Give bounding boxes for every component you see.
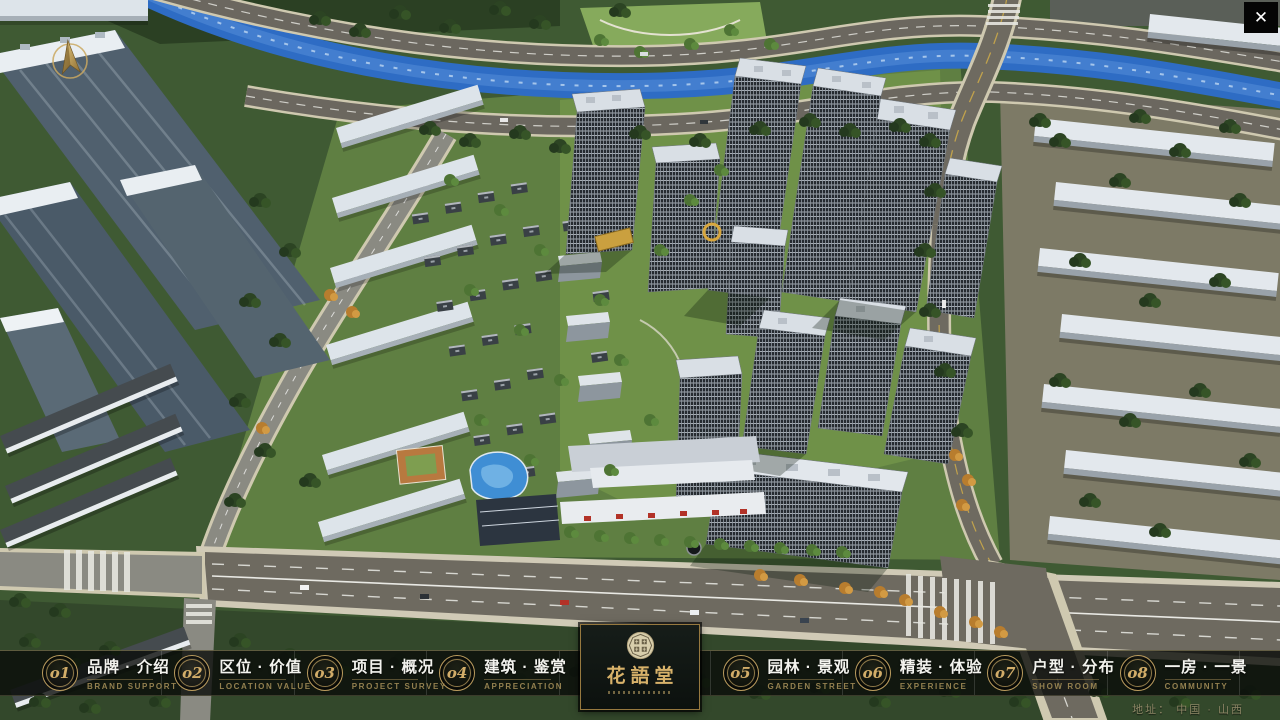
nav-item-location[interactable]: o2 区位 · 价值 LOCATION VALUE xyxy=(162,651,294,695)
close-icon: ✕ xyxy=(1254,8,1268,28)
nav-label-en: APPRECIATION xyxy=(484,679,550,691)
nav-label-cn: 精装 · 体验 xyxy=(900,655,966,677)
nav-label-cn: 项目 · 概况 xyxy=(352,655,418,677)
masterplan-viewer: ✕ o1 品牌 · 介绍 BRAND SUPPORT o2 区位 · 价值 LO… xyxy=(0,0,1280,720)
nav-label-en: BRAND SUPPORT xyxy=(87,679,153,691)
seal-icon xyxy=(626,631,655,660)
nav-item-brand[interactable]: o1 品牌 · 介绍 BRAND SUPPORT xyxy=(30,651,162,695)
nav-item-interior[interactable]: o6 精装 · 体验 EXPERIENCE xyxy=(843,651,975,695)
nav-item-views[interactable]: o8 一房 · 一景 COMMUNITY xyxy=(1108,651,1240,695)
nav-label-en: LOCATION VALUE xyxy=(219,679,285,691)
nav-number-badge: o3 xyxy=(307,655,343,691)
nav-item-architecture[interactable]: o4 建筑 · 鉴赏 APPRECIATION xyxy=(427,651,559,695)
nav-label-cn: 建筑 · 鉴赏 xyxy=(484,655,550,677)
nav-label-cn: 园林 · 景观 xyxy=(768,655,834,677)
nav-item-garden[interactable]: o5 园林 · 景观 GARDEN STREET xyxy=(711,651,843,695)
logo-title: 花語堂 xyxy=(601,661,678,688)
nav-label-en: GARDEN STREET xyxy=(768,679,834,691)
nav-number-badge: o8 xyxy=(1120,655,1156,691)
nav-label-cn: 户型 · 分布 xyxy=(1032,655,1098,677)
nav-number-badge: o4 xyxy=(439,655,475,691)
nav-number-badge: o5 xyxy=(723,655,759,691)
nav-number-badge: o1 xyxy=(42,655,78,691)
logo-subtitle xyxy=(608,691,672,694)
nav-item-project[interactable]: o3 项目 · 概况 PROJECT SURVEY xyxy=(295,651,427,695)
nav-number-badge: o7 xyxy=(987,655,1023,691)
nav-number-badge: o2 xyxy=(174,655,210,691)
nav-label-en: PROJECT SURVEY xyxy=(352,679,418,691)
nav-label-en: SHOW ROOM xyxy=(1032,679,1098,691)
logo-panel[interactable]: 花語堂 xyxy=(580,624,700,710)
close-button[interactable]: ✕ xyxy=(1244,2,1278,33)
nav-label-en: EXPERIENCE xyxy=(900,679,966,691)
nav-item-floorplan[interactable]: o7 户型 · 分布 SHOW ROOM xyxy=(975,651,1107,695)
nav-number-badge: o6 xyxy=(855,655,891,691)
nav-label-cn: 品牌 · 介绍 xyxy=(87,655,153,677)
nav-endcap xyxy=(1240,651,1280,695)
nav-label-en: COMMUNITY xyxy=(1165,679,1231,691)
masterplan-render[interactable] xyxy=(0,0,1280,720)
nav-label-cn: 一房 · 一景 xyxy=(1165,655,1231,677)
nav-label-cn: 区位 · 价值 xyxy=(219,655,285,677)
address-text: 地址： 中国 · 山西 xyxy=(1132,701,1244,717)
